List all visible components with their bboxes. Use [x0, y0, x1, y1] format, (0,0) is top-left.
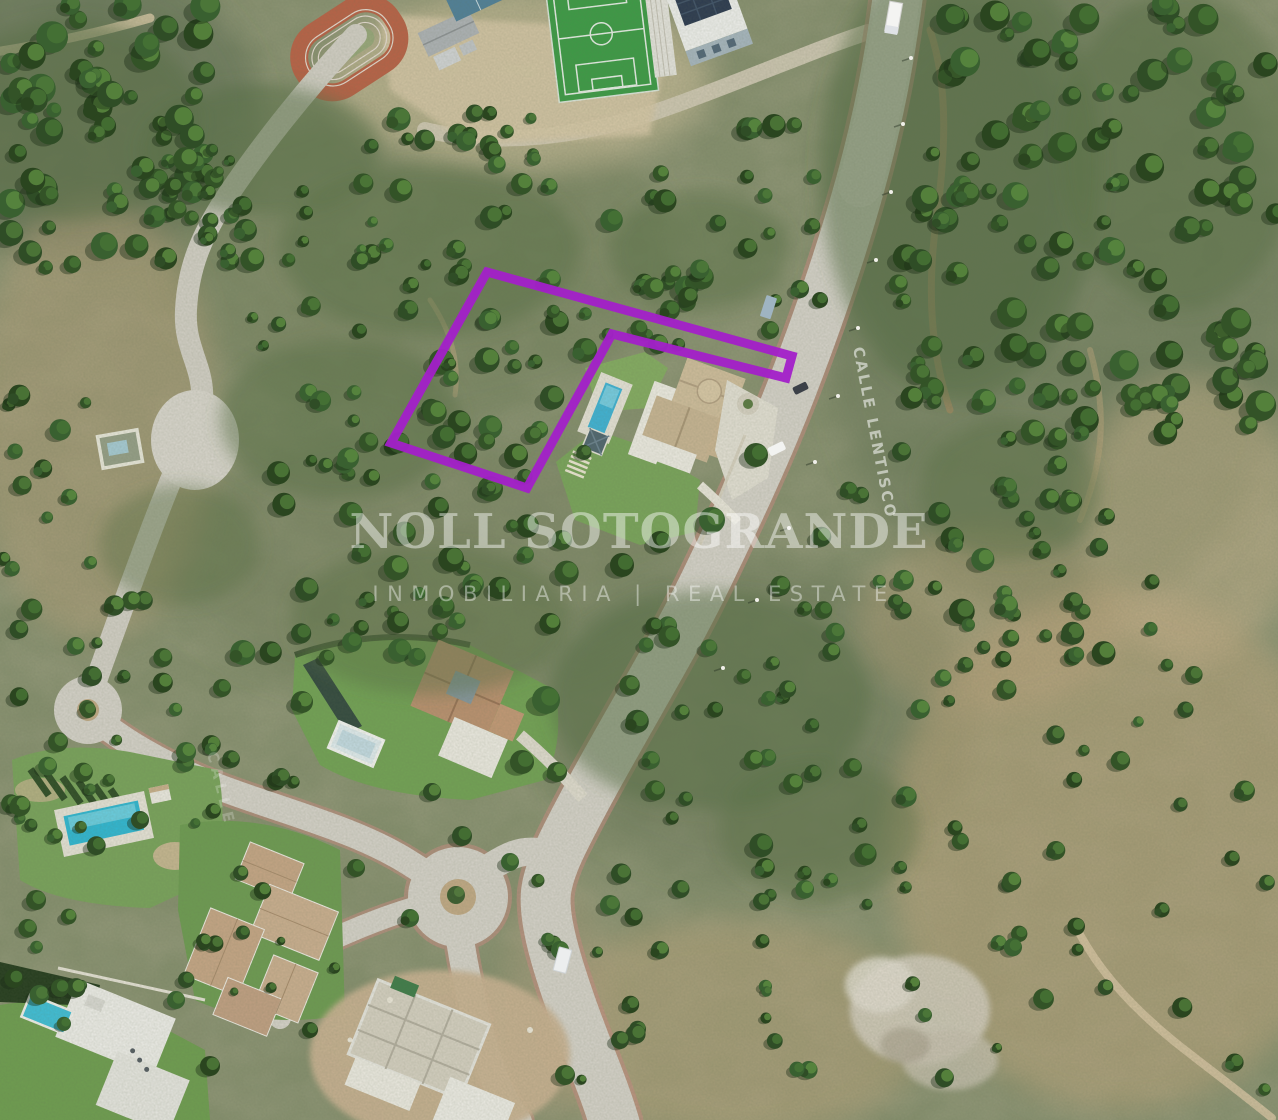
tree-part	[1053, 569, 1060, 576]
tree-part	[274, 463, 288, 477]
tree-part	[1165, 343, 1182, 360]
tree-part	[1178, 799, 1187, 808]
tree-part	[401, 916, 410, 925]
tree-part	[562, 563, 577, 578]
tree-part	[1227, 92, 1235, 100]
tree-part	[1262, 1084, 1270, 1092]
tree-part	[358, 621, 368, 631]
tree-part	[1223, 338, 1238, 353]
tree-part	[424, 260, 431, 267]
tree-part	[596, 947, 603, 954]
tree-part	[494, 157, 505, 168]
tree-part	[174, 202, 186, 214]
tree-part	[804, 772, 813, 781]
tree-part	[772, 1034, 782, 1044]
tree-part	[369, 470, 379, 480]
tree-part	[455, 412, 469, 426]
watermark: NOLL SOTOGRANDE INMOBILIARIA | REAL ESTA…	[349, 504, 928, 607]
tree-part	[1000, 33, 1007, 40]
tree-part	[849, 760, 861, 772]
tree-part	[651, 948, 660, 957]
tree-part	[896, 794, 906, 804]
tree-part	[905, 982, 912, 989]
tree-part	[1165, 660, 1173, 668]
tree-part	[88, 557, 96, 565]
tree-part	[1010, 940, 1021, 951]
tree-part	[140, 593, 152, 605]
tree-part	[219, 680, 230, 691]
tree-part	[188, 126, 203, 141]
tree-part	[47, 222, 56, 231]
tree-part	[113, 3, 127, 17]
tree-part	[1070, 352, 1085, 367]
tree-part	[546, 934, 554, 942]
tree-part	[272, 775, 281, 784]
tree-part	[666, 627, 679, 640]
tree-part	[444, 363, 450, 369]
tree-part	[981, 642, 989, 650]
tree-part	[258, 345, 263, 350]
tree-part	[652, 782, 665, 795]
tree-part	[47, 834, 55, 842]
tree-part	[353, 860, 364, 871]
tree-part	[131, 165, 143, 177]
tree-part	[485, 312, 497, 324]
tree-part	[1074, 648, 1084, 658]
tree-part	[1014, 379, 1024, 389]
tree-part	[1154, 908, 1161, 915]
tree-part	[936, 504, 950, 518]
tree-part	[33, 467, 42, 476]
tree-part	[1099, 248, 1112, 261]
tree-part	[932, 219, 941, 228]
tree-part	[200, 191, 207, 198]
tree-part	[917, 365, 929, 377]
tree-part	[46, 187, 58, 199]
tree-part	[896, 300, 904, 308]
tree-part	[1096, 539, 1107, 550]
tree-part	[862, 845, 876, 859]
tree-part	[551, 306, 559, 314]
tree-part	[765, 750, 776, 761]
tree-part	[1238, 168, 1255, 185]
tree-part	[85, 703, 95, 713]
tree-part	[1149, 575, 1158, 584]
tree-part	[644, 639, 653, 648]
tree-part	[770, 116, 785, 131]
tree-part	[183, 973, 193, 983]
tree-part	[1046, 849, 1055, 858]
tree-part	[60, 3, 70, 13]
tree-part	[1000, 437, 1008, 445]
tree-part	[1047, 463, 1057, 473]
tree-part	[448, 273, 458, 283]
tree-part	[51, 104, 60, 113]
tree-part	[744, 240, 756, 252]
tree-part	[486, 417, 501, 432]
tree-part	[310, 456, 317, 463]
tree-part	[323, 459, 332, 468]
tree-part	[146, 178, 160, 192]
tree-part	[765, 987, 771, 993]
tree-part	[757, 835, 772, 850]
tree-part	[1, 553, 10, 562]
tree-part	[1066, 494, 1079, 507]
tree-part	[797, 607, 804, 614]
tree-part	[840, 489, 849, 498]
tree-part	[303, 579, 318, 594]
tree-part	[1061, 395, 1069, 403]
tree-part	[182, 190, 193, 201]
tree-part	[1117, 753, 1129, 765]
tree-part	[432, 605, 443, 616]
tree-part	[958, 601, 974, 617]
street-light-part	[909, 56, 913, 60]
tree-part	[1261, 54, 1276, 69]
tree-part	[608, 211, 622, 225]
tree-part	[84, 398, 91, 405]
tree-part	[932, 396, 941, 405]
tree-part	[956, 191, 968, 203]
tree-part	[1082, 746, 1089, 753]
tree-part	[1145, 155, 1162, 172]
tree-part	[85, 72, 96, 83]
tree-part	[1033, 393, 1046, 406]
tree-part	[636, 322, 647, 333]
tree-part	[34, 942, 42, 950]
tree-part	[27, 113, 38, 124]
tree-part	[189, 212, 198, 221]
tree-part	[472, 106, 483, 117]
street-light-part	[856, 326, 860, 330]
street-light-part	[874, 258, 878, 262]
tree-part	[128, 593, 140, 605]
tree-part	[528, 360, 535, 367]
tree-part	[1179, 999, 1192, 1012]
tree-part	[397, 180, 411, 194]
tree-part	[329, 967, 335, 973]
tree-part	[489, 143, 501, 155]
tree-part	[1074, 432, 1082, 440]
tree-part	[1046, 490, 1059, 503]
tree-part	[19, 477, 31, 489]
tree-part	[767, 228, 775, 236]
tree-part	[29, 170, 45, 186]
tree-part	[990, 3, 1008, 21]
tree-part	[962, 355, 973, 366]
tree-part	[247, 316, 253, 322]
tree-part	[991, 221, 1000, 230]
tree-part	[217, 167, 224, 174]
tree-part	[369, 140, 378, 149]
tree-part	[212, 937, 222, 947]
tree-part	[804, 224, 812, 232]
tree-part	[1010, 336, 1027, 353]
tree-part	[208, 214, 218, 224]
tree-part	[1008, 631, 1019, 642]
tree-part	[1229, 852, 1239, 862]
tree-part	[580, 1076, 586, 1082]
tree-part	[1234, 789, 1244, 799]
tree-part	[307, 1023, 317, 1033]
tree-part	[100, 234, 117, 251]
tree-part	[448, 372, 458, 382]
tree-part	[1175, 49, 1191, 65]
tree-part	[1171, 413, 1182, 424]
tree-part	[360, 245, 366, 251]
tree-part	[73, 980, 85, 992]
tree-part	[462, 444, 476, 458]
tree-part	[651, 619, 662, 630]
tree-part	[25, 921, 36, 932]
tree-part	[220, 259, 229, 268]
tree-part	[365, 434, 377, 446]
tree-part	[712, 703, 722, 713]
tree-part	[386, 117, 398, 129]
tree-part	[502, 206, 511, 215]
tree-part	[80, 764, 92, 776]
tree-part	[894, 866, 901, 873]
tree-part	[1016, 927, 1026, 937]
tree-part	[57, 980, 68, 991]
tree-part	[28, 44, 45, 61]
tree-part	[641, 758, 650, 767]
tree-part	[696, 261, 708, 273]
tree-part	[327, 618, 333, 624]
tree-part	[742, 670, 751, 679]
tree-part	[971, 399, 983, 411]
tree-part	[923, 1009, 932, 1018]
tree-part	[650, 279, 663, 292]
tree-part	[1011, 184, 1027, 200]
tree-part	[191, 88, 202, 99]
tree-part	[948, 543, 955, 550]
street-light-part	[813, 460, 817, 464]
tree-part	[200, 63, 214, 77]
tree-part	[685, 288, 697, 300]
tree-part	[210, 145, 218, 153]
tree-part	[1264, 876, 1274, 886]
tree-part	[106, 201, 117, 212]
tree-part	[102, 779, 108, 785]
tree-part	[946, 6, 964, 24]
tree-part	[87, 47, 95, 55]
tree-part	[337, 456, 348, 467]
tree-part	[161, 17, 177, 33]
tree-part	[238, 867, 247, 876]
tree-part	[790, 287, 799, 296]
tree-part	[1245, 417, 1256, 428]
tree-part	[1061, 631, 1073, 643]
tree-part	[1033, 41, 1050, 58]
tree-part	[518, 175, 531, 188]
tree-part	[12, 445, 22, 455]
tree-part	[82, 674, 92, 684]
tree-part	[276, 318, 285, 327]
tree-part	[966, 619, 974, 627]
tree-part	[360, 175, 372, 187]
tree-part	[26, 242, 41, 257]
tree-part	[1202, 221, 1212, 231]
tree-part	[908, 388, 922, 402]
tree-part	[626, 677, 639, 690]
tree-part	[852, 823, 860, 831]
tree-part	[482, 487, 489, 494]
tree-part	[677, 881, 688, 892]
tree-part	[1237, 193, 1251, 207]
tree-part	[324, 651, 334, 661]
tree-part	[112, 184, 122, 194]
tree-part	[21, 97, 34, 110]
tree-part	[117, 675, 124, 682]
tree-part	[957, 834, 968, 845]
street-light-part	[721, 666, 725, 670]
tree-part	[15, 146, 26, 157]
tree-part	[960, 49, 978, 67]
tree-part	[1055, 429, 1067, 441]
tree-part	[530, 428, 541, 439]
tree-part	[1007, 300, 1026, 319]
tree-part	[764, 1013, 771, 1020]
tree-part	[483, 350, 498, 365]
tree-part	[431, 402, 446, 417]
tree-part	[997, 485, 1007, 495]
tree-part	[832, 624, 844, 636]
tree-part	[47, 24, 67, 44]
tree-part	[106, 83, 123, 100]
tree-part	[766, 662, 773, 669]
tree-part	[304, 207, 313, 216]
tree-part	[967, 153, 979, 165]
tree-part	[61, 1018, 70, 1027]
tree-part	[991, 123, 1008, 140]
tree-part	[933, 582, 942, 591]
tree-part	[73, 639, 84, 650]
tree-part	[759, 894, 770, 905]
tree-part	[1082, 253, 1093, 264]
tree-part	[1024, 512, 1034, 522]
tree-part	[921, 187, 938, 204]
tree-part	[1119, 353, 1137, 371]
tree-part	[8, 87, 20, 99]
tree-part	[1154, 304, 1167, 317]
tree-part	[394, 613, 408, 627]
tree-part	[16, 622, 28, 634]
tree-part	[75, 12, 86, 23]
tree-part	[1137, 717, 1144, 724]
tree-part	[1206, 72, 1221, 87]
tree-part	[547, 770, 557, 780]
tree-part	[536, 875, 544, 883]
tree-part	[111, 739, 116, 744]
tree-part	[1019, 13, 1032, 26]
tree-part	[207, 1058, 219, 1070]
tree-part	[1080, 408, 1097, 425]
tree-part	[546, 615, 559, 628]
tree-part	[1051, 40, 1064, 53]
tree-part	[865, 900, 872, 907]
tree-part	[16, 689, 28, 701]
tree-part	[266, 987, 271, 992]
tree-part	[170, 179, 181, 190]
tree-part	[505, 126, 513, 134]
tree-part	[1197, 145, 1208, 156]
tree-part	[297, 240, 303, 246]
tree-part	[144, 214, 155, 225]
tree-part	[811, 170, 820, 179]
watermark-subtitle: INMOBILIARIA | REAL ESTATE	[372, 582, 895, 607]
tree-part	[280, 937, 285, 942]
tree-part	[93, 838, 105, 850]
tree-part	[802, 882, 814, 894]
tree-part	[1098, 515, 1106, 523]
tree-part	[1128, 86, 1139, 97]
tree-part	[1032, 548, 1041, 557]
tree-part	[260, 884, 271, 895]
tree-part	[1012, 114, 1026, 128]
tree-part	[349, 634, 361, 646]
tree-part	[88, 132, 97, 141]
tree-part	[1102, 84, 1113, 95]
tree-part	[459, 828, 471, 840]
tree-part	[952, 821, 961, 830]
tree-part	[670, 267, 680, 277]
tree-part	[1029, 109, 1039, 119]
tree-part	[805, 724, 812, 731]
tree-part	[541, 688, 558, 705]
tree-part	[632, 1026, 644, 1038]
tree-part	[1076, 945, 1083, 952]
tree-part	[1069, 88, 1081, 100]
tree-part	[137, 812, 148, 823]
tree-part	[579, 312, 585, 318]
tree-part	[1063, 600, 1073, 610]
tree-part	[396, 640, 411, 655]
tree-part	[1065, 53, 1077, 65]
tree-part	[359, 598, 367, 606]
tree-part	[548, 387, 563, 402]
tree-part	[291, 777, 299, 785]
tree-part	[785, 682, 796, 693]
tree-part	[38, 266, 45, 273]
tree-part	[790, 775, 802, 787]
tree-part	[133, 236, 148, 251]
tree-part	[531, 153, 540, 162]
tree-part	[762, 189, 771, 198]
tree-part	[183, 744, 195, 756]
tree-part	[1057, 233, 1072, 248]
tree-part	[631, 909, 642, 920]
tree-part	[233, 988, 238, 993]
tree-part	[572, 348, 584, 360]
tree-part	[414, 649, 425, 660]
tree-part	[310, 399, 321, 410]
tree-part	[440, 427, 455, 442]
tree-part	[28, 600, 41, 613]
tree-part	[817, 293, 827, 303]
tree-part	[488, 207, 502, 221]
tree-part	[69, 257, 80, 268]
tree-part	[33, 892, 45, 904]
tree-part	[463, 133, 475, 145]
tree-part	[792, 119, 802, 129]
satellite-map-canvas[interactable]: CALLE LENTISCO CALLE NOLL SOTOGRANDE INM…	[0, 0, 1278, 1120]
tree-part	[752, 445, 767, 460]
tree-part	[128, 91, 137, 100]
tree-part	[931, 148, 940, 157]
tree-part	[1052, 727, 1063, 738]
tree-part	[1166, 23, 1175, 32]
